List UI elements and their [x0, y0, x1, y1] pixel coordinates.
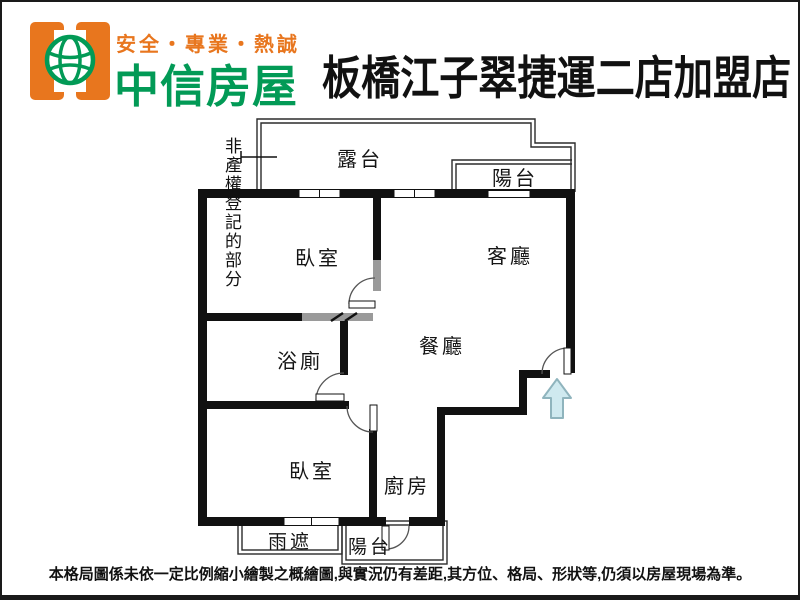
window-balcony-top: [488, 191, 530, 198]
wall-right: [566, 189, 575, 373]
label-bedroom-top: 臥室: [295, 247, 341, 270]
wall-hall-bottom: [437, 407, 527, 415]
flyer-page: 安全・專業・熱誠 中信房屋 板橋江子翠捷運二店加盟店: [0, 0, 800, 600]
door-bathroom: [316, 373, 344, 401]
label-balcony-top: 陽台: [492, 167, 538, 190]
non-registered-area-label: 非產權登記的部分: [222, 137, 241, 312]
label-bathroom: 浴廁: [277, 350, 323, 373]
label-terrace: 露台: [337, 148, 383, 171]
wall-bathroom-top: [198, 313, 302, 321]
door-bedroom2: [347, 405, 377, 432]
annotation-pointer-line: [241, 151, 277, 163]
label-balcony-bottom: 陽台: [348, 536, 392, 558]
door-bedroom1: [349, 278, 375, 308]
label-dining-room: 餐廳: [419, 335, 465, 358]
wall-bathroom-right: [340, 321, 348, 375]
entrance-arrow-icon: [543, 379, 571, 418]
floor-plan: 露台 陽台 臥室 客廳 餐廳 浴廁 臥室 廚房 雨遮 陽台: [2, 2, 800, 600]
wall-left: [198, 189, 207, 526]
wall-bedroom2-kitchen-divider: [369, 429, 377, 526]
gray-wall-vertical: [373, 260, 381, 291]
disclaimer-text: 本格局圖係未依一定比例縮小繪製之概繪圖,與實況仍有差距,其方位、格局、形狀等,仍…: [2, 563, 798, 584]
wall-bedroom1-right: [373, 189, 381, 260]
label-rain-cover: 雨遮: [268, 531, 312, 553]
label-bedroom-bottom: 臥室: [289, 460, 335, 483]
wall-kitchen-right: [437, 407, 445, 526]
label-living-room: 客廳: [487, 245, 533, 268]
wall-bedroom2-top: [198, 401, 349, 409]
label-kitchen: 廚房: [384, 474, 430, 498]
